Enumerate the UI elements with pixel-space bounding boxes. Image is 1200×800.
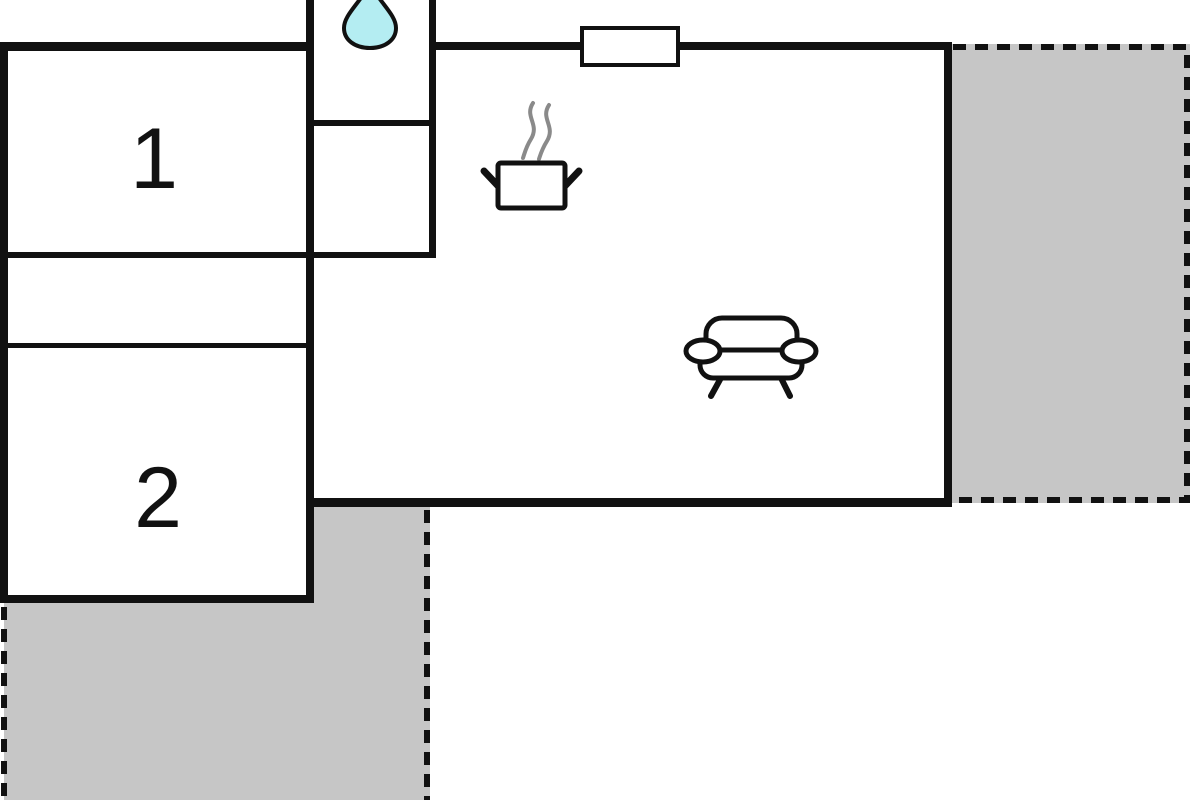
pot-body — [498, 163, 565, 208]
window-icon — [582, 28, 678, 65]
wall-hall-bottom — [0, 343, 314, 348]
wall-room2-bottom — [0, 595, 314, 603]
room-2-label: 2 — [134, 450, 182, 546]
wall-top-left — [0, 42, 313, 51]
sofa-icon — [686, 318, 816, 396]
wall-left-outer — [0, 42, 8, 603]
wall-column-right — [429, 0, 436, 258]
steam-line — [523, 103, 534, 158]
stove-pot-icon — [484, 103, 579, 208]
bottom-terrace-fill — [4, 503, 430, 800]
room-1-label: 1 — [130, 111, 178, 207]
floor-plan-drawing: 1 2 — [0, 0, 1200, 800]
wall-main-bottom — [306, 498, 952, 507]
steam-line — [539, 105, 550, 159]
right-terrace — [952, 44, 1190, 503]
wall-main-top — [429, 42, 952, 50]
right-terrace-fill — [952, 44, 1190, 503]
wall-column-spine — [306, 0, 314, 603]
bottom-terrace — [4, 503, 430, 800]
sofa-right-armrest — [782, 340, 816, 362]
floor-plan: 1 2 — [0, 0, 1200, 800]
wall-bathroom-divider — [306, 120, 436, 126]
wall-main-right — [944, 42, 952, 507]
sofa-left-armrest — [686, 340, 720, 362]
wall-room1-bottom — [0, 252, 436, 258]
water-drop-icon — [344, 0, 396, 48]
